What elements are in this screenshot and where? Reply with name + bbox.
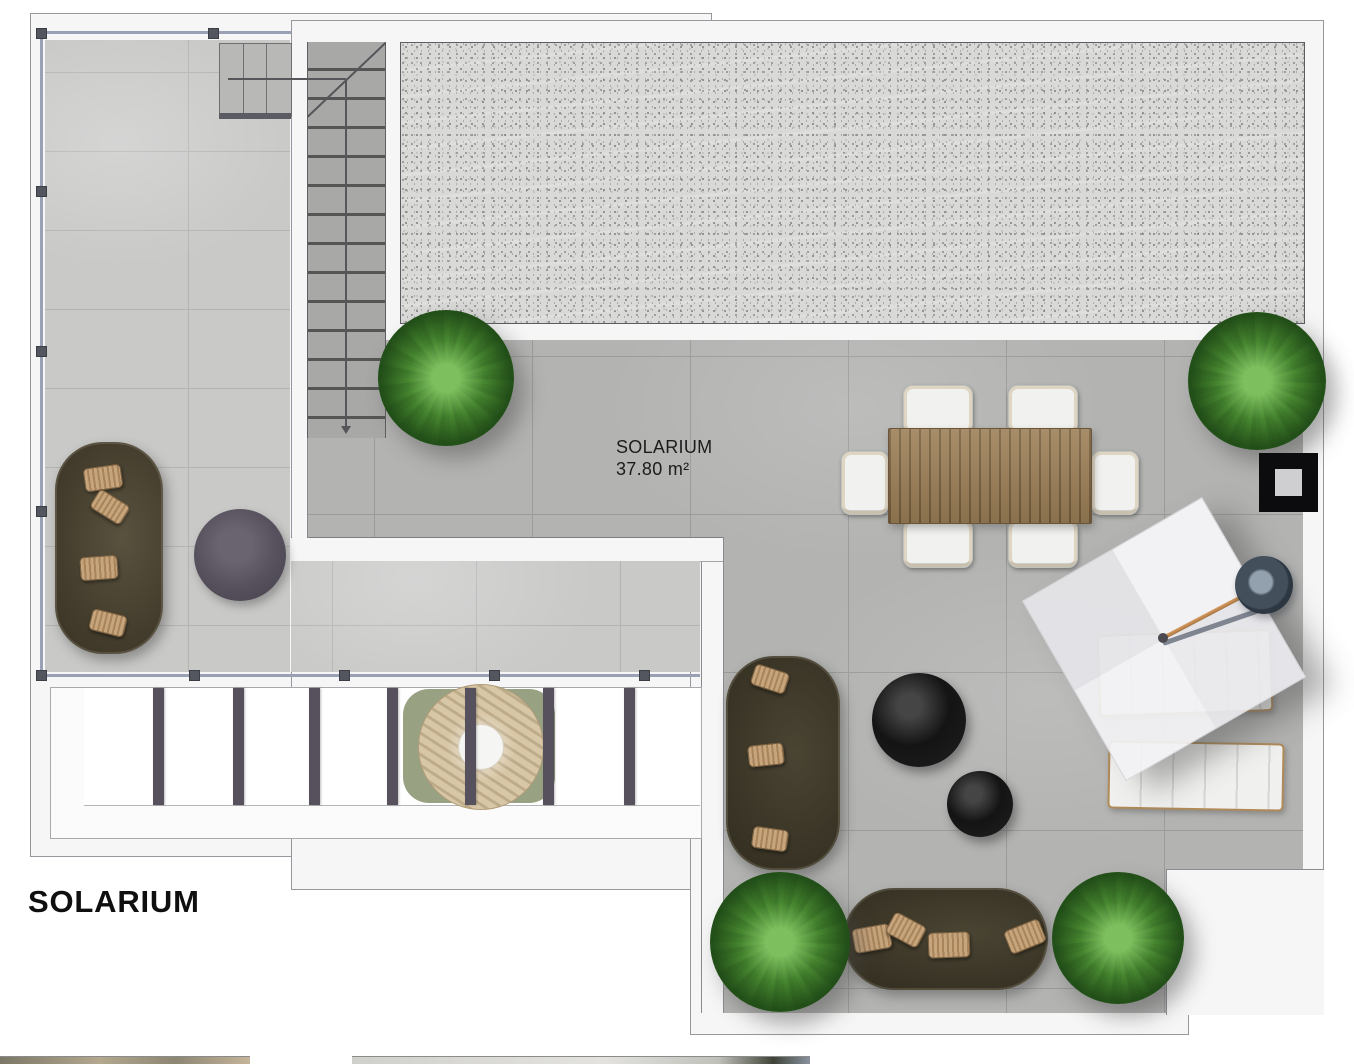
left-terrace-tiles-bottom <box>291 561 700 672</box>
stair-landing <box>219 43 292 117</box>
pergola-slat <box>387 688 398 805</box>
wall-stair-side <box>292 438 308 538</box>
railing-post <box>189 670 200 681</box>
pergola-slat <box>465 688 476 805</box>
stair-direction-line <box>345 79 347 426</box>
sofa-pillow <box>747 742 785 768</box>
parasol-hub <box>1158 633 1168 643</box>
pergola-slat <box>233 688 244 805</box>
stair-break-line <box>228 78 346 80</box>
railing-post <box>36 506 47 517</box>
railing-post <box>208 28 219 39</box>
terrace-notch <box>1166 869 1324 1015</box>
railing-post <box>36 670 47 681</box>
page-title: SOLARIUM <box>28 884 200 920</box>
railing-top <box>40 31 291 34</box>
side-table-round <box>194 509 286 601</box>
dining-chair <box>1008 385 1078 434</box>
room-label-area: 37.80 m² <box>616 459 756 481</box>
railing-post <box>36 28 47 39</box>
plant-bush <box>1052 872 1184 1004</box>
railing-post <box>36 346 47 357</box>
plant-bush <box>1188 312 1326 450</box>
staircase-flight <box>307 42 386 438</box>
plant-bush <box>378 310 514 446</box>
railing-bottom <box>40 674 700 677</box>
pergola-slat <box>153 688 164 805</box>
dining-chair <box>903 519 973 568</box>
coffee-table-black-small <box>947 771 1013 837</box>
dining-table <box>888 428 1092 524</box>
railing-post <box>36 186 47 197</box>
dining-chair <box>903 385 973 434</box>
room-label: SOLARIUM 37.80 m² <box>616 437 756 481</box>
coffee-table-black-large <box>872 673 966 767</box>
sofa-pillow <box>79 555 119 582</box>
landing-edge <box>219 113 291 119</box>
railing-post <box>339 670 350 681</box>
sofa-pillow <box>928 931 971 958</box>
pergola-slat <box>543 688 554 805</box>
dining-chair <box>1008 519 1078 568</box>
dining-chair <box>841 451 889 515</box>
gravel-roof <box>400 42 1305 324</box>
railing-post <box>639 670 650 681</box>
railing-post <box>489 670 500 681</box>
floor-plan-page: SOLARIUM 37.80 m² SOLARIUM <box>0 0 1354 1064</box>
stair-direction-arrow <box>341 426 351 434</box>
photo-thumbnail-right[interactable] <box>352 1056 810 1064</box>
plant-bush <box>710 872 850 1012</box>
parasol-base <box>1235 556 1293 614</box>
pergola-slat <box>624 688 635 805</box>
wall-horizontal-mid <box>291 537 723 562</box>
dining-chair <box>1091 451 1139 515</box>
room-label-name: SOLARIUM <box>616 437 756 459</box>
chimney-flue <box>1275 469 1302 496</box>
pergola-slat <box>309 688 320 805</box>
photo-thumbnail-left[interactable] <box>0 1056 250 1064</box>
